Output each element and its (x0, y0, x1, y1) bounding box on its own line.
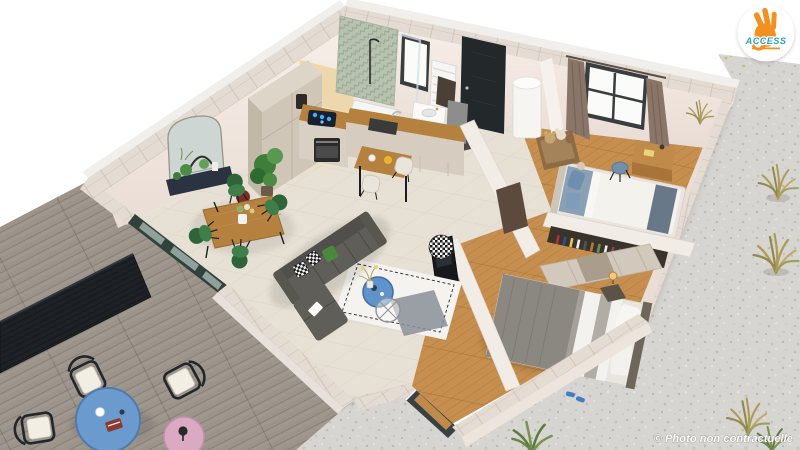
wire-side-table (376, 298, 400, 322)
bathroom-window (400, 34, 430, 92)
logo-tagline-bar (752, 48, 780, 50)
round-table-blue (76, 388, 140, 450)
floorplan-render: ACCESS © Photo non contractuelle (0, 0, 800, 450)
houndstooth-pouf (429, 235, 453, 259)
screenshot-root: ACCESS © Photo non contractuelle (0, 0, 800, 450)
shower-tile-wall (336, 16, 398, 106)
watermark: © Photo non contractuelle (654, 433, 793, 445)
cooktop-counter (299, 104, 352, 168)
water-heater (513, 77, 541, 138)
access-logo: ACCESS (738, 5, 795, 62)
logo-text: ACCESS (745, 36, 787, 46)
oven (314, 138, 340, 162)
side-table-pink (164, 417, 204, 450)
